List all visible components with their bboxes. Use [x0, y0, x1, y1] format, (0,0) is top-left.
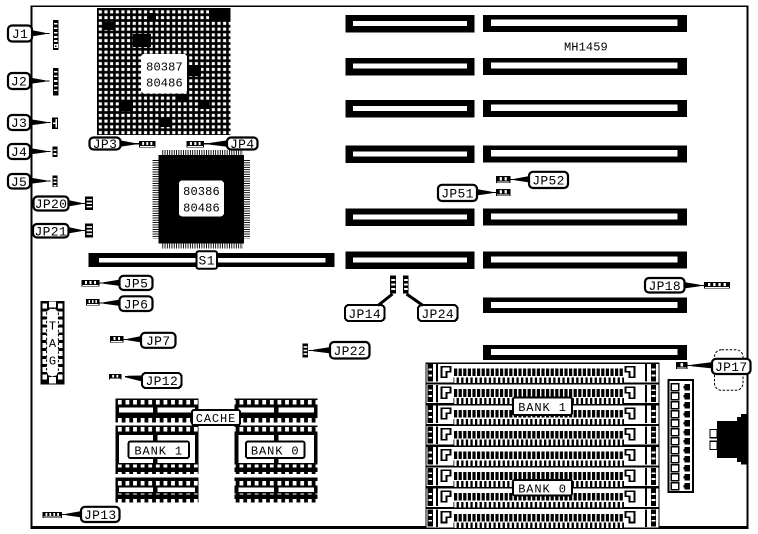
svg-text:JP51: JP51 [441, 187, 474, 202]
svg-text:JP13: JP13 [84, 508, 117, 523]
svg-text:BANK 0: BANK 0 [518, 483, 567, 497]
svg-text:J2: J2 [11, 75, 27, 90]
svg-text:JP5: JP5 [124, 277, 148, 292]
svg-text:JP3: JP3 [93, 137, 117, 152]
svg-text:80387: 80387 [146, 61, 183, 75]
svg-text:JP12: JP12 [145, 374, 178, 389]
svg-text:JP14: JP14 [348, 307, 381, 322]
svg-text:JP20: JP20 [35, 197, 68, 212]
svg-text:JP52: JP52 [532, 174, 565, 189]
svg-text:JP17: JP17 [715, 360, 748, 375]
svg-text:J1: J1 [12, 27, 28, 42]
svg-text:S1: S1 [198, 254, 215, 269]
svg-text:T: T [49, 320, 56, 334]
svg-text:J3: J3 [11, 116, 27, 131]
svg-text:MH1459: MH1459 [564, 40, 608, 54]
svg-text:BANK 0: BANK 0 [251, 444, 300, 458]
svg-text:BANK 1: BANK 1 [518, 401, 567, 415]
svg-text:JP24: JP24 [421, 307, 454, 322]
svg-text:J5: J5 [11, 175, 27, 190]
svg-text:BANK 1: BANK 1 [134, 444, 183, 458]
svg-text:80386: 80386 [183, 185, 220, 199]
svg-text:JP21: JP21 [34, 224, 67, 239]
svg-text:J4: J4 [11, 145, 27, 160]
svg-text:A: A [49, 337, 57, 351]
svg-text:JP22: JP22 [333, 344, 366, 359]
svg-text:CACHE: CACHE [196, 412, 237, 426]
svg-text:JP7: JP7 [146, 334, 170, 349]
svg-text:G: G [49, 355, 56, 369]
svg-text:JP4: JP4 [230, 137, 254, 152]
svg-text:JP18: JP18 [648, 279, 681, 294]
svg-text:80486: 80486 [183, 202, 220, 216]
svg-text:80486: 80486 [146, 77, 183, 91]
svg-text:JP6: JP6 [124, 297, 148, 312]
